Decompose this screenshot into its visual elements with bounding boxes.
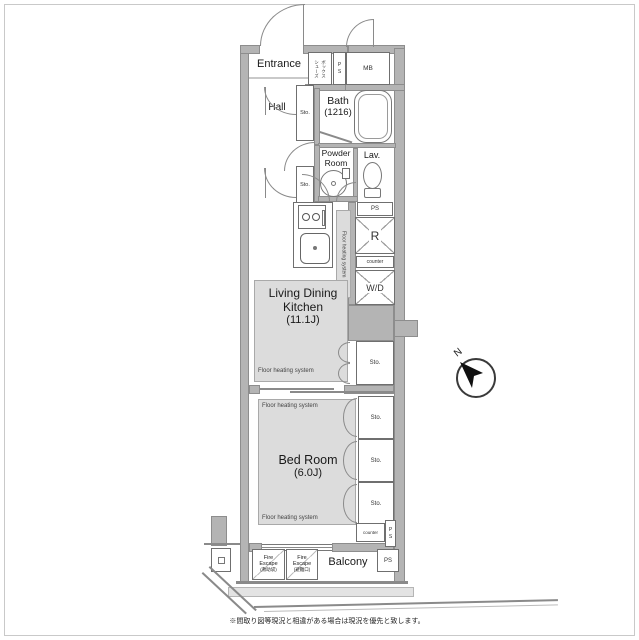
stove-icon [298, 205, 326, 229]
compass-icon: N [442, 342, 506, 406]
powder-room-label: Powder Room [316, 148, 356, 170]
balcony-divider-box [211, 548, 231, 572]
bath-door-line [319, 131, 352, 143]
bedroom-storage-2-label: Sto. [371, 458, 382, 464]
fire-escape-1: Fire Escape (救助袋) [252, 549, 285, 580]
bedroom-counter-label: counter [363, 530, 378, 535]
sliding-door-line-1 [260, 388, 334, 390]
shoes-box-label-col2: ボックス [321, 60, 327, 78]
hall-storage-1: Sto. [296, 85, 314, 141]
pipe-shaft-lavatory: PS [357, 202, 393, 216]
pipe-shaft-entrance-label: PS [337, 62, 343, 76]
washer-dryer-label: W/D [364, 283, 386, 293]
fire-escape-1-note: (救助袋) [260, 568, 277, 573]
wall-partition-stub-left [249, 385, 260, 394]
toilet-icon [363, 162, 382, 189]
shoes-box-label-col1: シューズ [314, 60, 320, 78]
pipe-shaft-bedroom-label: PS [388, 527, 394, 541]
wall-left [240, 45, 249, 583]
washer-dryer-space: W/D [355, 270, 395, 305]
ldk-label-size: (11.1J) [286, 314, 319, 326]
bedroom-storage-3: Sto. [358, 482, 394, 525]
floor-plan: Entrance シューズ ボックス PS MB Hall Sto. Sto. … [0, 0, 639, 640]
balcony-label: Balcony [322, 553, 374, 571]
meter-box-door-arc [346, 19, 374, 47]
wall-right [394, 48, 405, 583]
refrigerator-space: R [355, 217, 395, 254]
balcony-window-midline [262, 547, 332, 548]
entrance-door-leaf [303, 4, 304, 46]
meter-box-door-leaf [373, 19, 374, 47]
floor-heating-label-bedroom-top: Floor heating system [262, 403, 352, 413]
ldk-label: Living Dining Kitchen (11.1J) [262, 284, 344, 330]
bedroom-storage-1: Sto. [358, 396, 394, 439]
washbasin-tap [342, 168, 350, 179]
sliding-door-line-2 [290, 391, 394, 393]
hall-door-arc [284, 142, 315, 171]
floor-heating-label-bedroom-bottom: Floor heating system [262, 515, 352, 525]
pipe-shaft-balcony: PS [377, 549, 399, 572]
balcony-edge-line [236, 581, 408, 584]
ldk-label-l1: Living Dining [269, 287, 338, 300]
pipe-shaft-balcony-label: PS [384, 558, 392, 564]
sink-faucet [313, 246, 317, 250]
fire-escape-2: Fire Escape (避難口) [286, 549, 318, 580]
pipe-shaft-lavatory-label: PS [371, 206, 379, 212]
pipe-shaft-entrance: PS [333, 52, 346, 85]
north-label: N [452, 346, 464, 359]
counter-shelf: counter [356, 256, 394, 268]
building-edge-line-1 [254, 599, 558, 608]
bedroom-storage-3-label: Sto. [371, 501, 382, 507]
hall-storage-1-door-leaf [265, 87, 266, 115]
counter-shelf-label: counter [367, 259, 384, 265]
floor-heating-strip-label: Floor heating system [341, 231, 347, 277]
toilet-tank [364, 188, 381, 198]
hall-door-leaf [314, 142, 315, 171]
stove-burner-2 [312, 213, 320, 221]
hall-storage-1-label: Sto. [300, 110, 310, 116]
entrance-label: Entrance [250, 56, 308, 72]
footnote: ※間取り図等現況と相違がある場合は現況を優先と致します。 [207, 615, 447, 627]
balcony-pillar [211, 516, 227, 546]
hall-storage-2-door-leaf [265, 168, 266, 198]
refrigerator-label: R [369, 229, 382, 243]
bedroom-label: Bed Room (6.0J) [266, 448, 350, 484]
lavatory-label: Lav. [358, 149, 386, 161]
meter-box-label: MB [363, 65, 373, 72]
stove-panel [322, 210, 325, 226]
bath-label-name: Bath [327, 96, 349, 108]
floor-heating-label-ldk: Floor heating system [258, 368, 348, 378]
stove-burner-1 [302, 213, 310, 221]
bedroom-storage-1-label: Sto. [371, 415, 382, 421]
entrance-step-line [249, 77, 309, 79]
shoes-box: シューズ ボックス [308, 52, 332, 85]
bath-label-size: (1216) [324, 108, 351, 119]
bathtub-icon [354, 90, 392, 143]
bathtub-inner [358, 94, 388, 139]
ldk-storage: Sto. [356, 341, 394, 385]
balcony-left-line [204, 543, 240, 545]
balcony-divider-dot [218, 557, 225, 564]
bedroom-label-size: (6.0J) [294, 467, 322, 479]
wall-protrusion [394, 320, 418, 337]
pipe-shaft-bedroom: PS [385, 520, 396, 547]
ldk-label-l2: Kitchen [283, 301, 323, 314]
ldk-storage-label: Sto. [370, 360, 381, 366]
meter-box: MB [346, 52, 390, 85]
bedroom-label-name: Bed Room [278, 453, 337, 467]
washbasin-drain [331, 181, 336, 186]
wall-top-left [240, 45, 260, 54]
bedroom-storage-2: Sto. [358, 439, 394, 482]
balcony-slab [228, 587, 414, 597]
entrance-door-arc [260, 4, 305, 46]
hall-storage-2-door-arc [264, 168, 296, 198]
fire-escape-2-note: (避難口) [294, 568, 311, 573]
wall-ldk-right-block [348, 305, 394, 341]
bedroom-counter: counter [356, 523, 385, 542]
